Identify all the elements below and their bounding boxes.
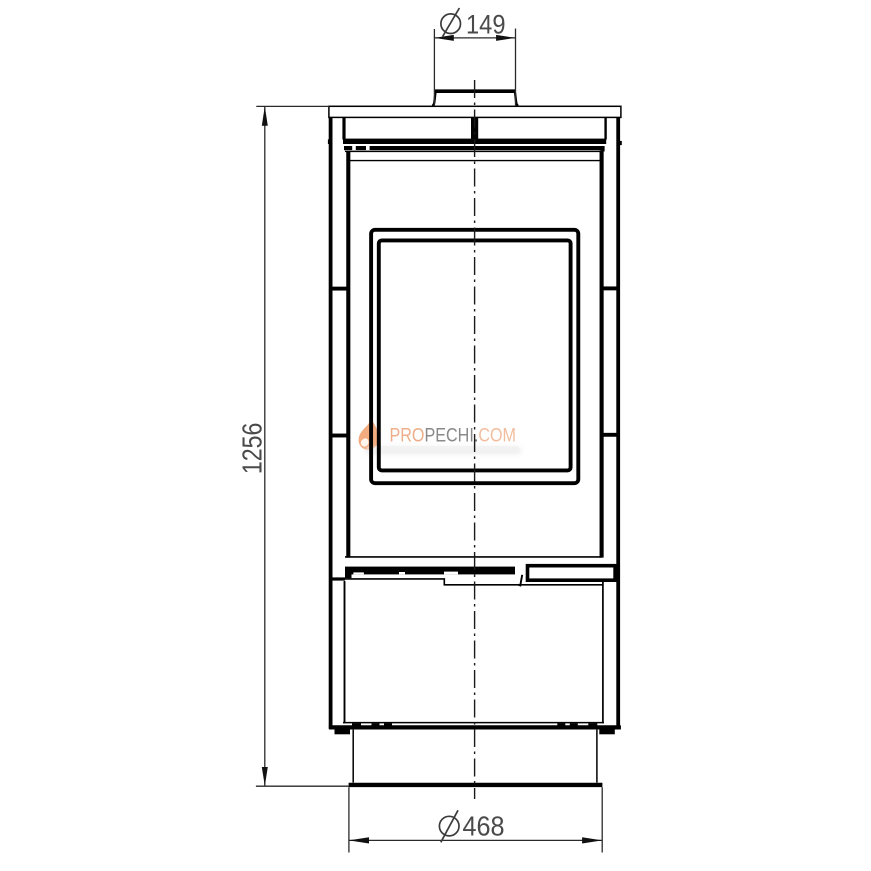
svg-text:1256: 1256 [236, 423, 267, 475]
svg-text:468: 468 [463, 810, 505, 841]
svg-text:PROPECHI.COM: PROPECHI.COM [390, 425, 517, 447]
svg-text:149: 149 [466, 9, 506, 39]
